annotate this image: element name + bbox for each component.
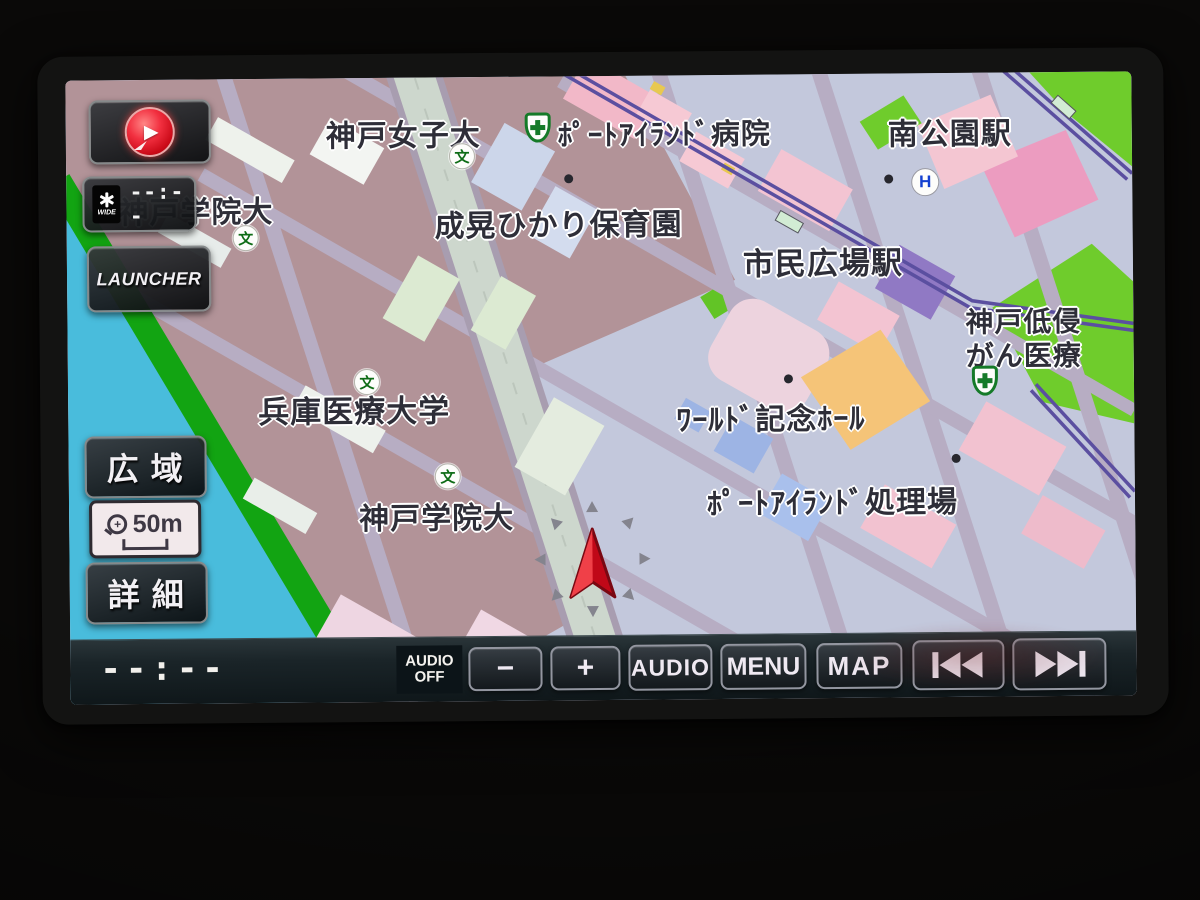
current-position-marker: [522, 488, 663, 629]
compass-arrow-glyph: ▶: [144, 120, 159, 143]
nav-unit-bezel: 神戸女子大 ﾎﾟｰﾄｱｲﾗﾝﾄﾞ病院 南公園駅 神戸学院大 成晃ひかり保育園 市…: [37, 47, 1169, 725]
school-char: 文: [454, 146, 469, 167]
map-label-port-island-hospital: ﾎﾟｰﾄｱｲﾗﾝﾄﾞ病院: [558, 111, 771, 155]
map-label-shimin-hiroba: 市民広場駅: [743, 237, 903, 283]
audio-off-line2: OFF: [414, 669, 444, 685]
school-char: 文: [359, 371, 374, 392]
position-arrow-icon: [570, 529, 615, 597]
map-label-world-hall: ﾜｰﾙﾄﾞ記念ﾎｰﾙ: [676, 394, 865, 440]
vics-info-button[interactable]: WIDE --:--: [82, 176, 196, 233]
map-label-minami-koen-station: 南公園駅: [888, 108, 1012, 153]
zoom-in-detail-button[interactable]: 詳細: [86, 561, 209, 624]
school-icon: 文: [435, 463, 461, 489]
school-icon: 文: [233, 225, 259, 251]
map-label-port-shorijo: ﾎﾟｰﾄｱｲﾗﾝﾄﾞ処理場: [707, 477, 958, 523]
clock-display: --:--: [100, 648, 228, 689]
heliport-icon: H: [911, 168, 939, 196]
scale-value: 50m: [133, 509, 183, 538]
scale-bracket-shape: [122, 539, 168, 550]
poi-dot: [952, 454, 961, 463]
photo-watermark-artifact: [840, 620, 1111, 692]
volume-down-button[interactable]: −: [468, 647, 542, 692]
audio-off-line1: AUDIO: [405, 654, 453, 670]
detail-label: 詳細: [108, 570, 196, 617]
wide-label: 広域: [106, 444, 194, 491]
heading-up-compass-icon: ▶: [125, 107, 175, 157]
school-char: 文: [440, 466, 455, 487]
zoom-out-wide-button[interactable]: 広域: [84, 435, 207, 498]
map-label-kobe-gakuin-south: 神戸学院大: [359, 493, 514, 538]
poi-dot: [784, 374, 793, 383]
launcher-button[interactable]: LAUNCHER: [87, 245, 212, 312]
zoom-in-magnifier-icon: +: [108, 514, 128, 534]
launcher-label: LAUNCHER: [96, 268, 201, 290]
school-char: 文: [238, 228, 253, 249]
school-icon: 文: [354, 369, 380, 395]
vics-star-shape: [99, 192, 114, 207]
map-label-hyogo-iryo: 兵庫医療大学: [258, 385, 450, 432]
poi-dot: [564, 174, 573, 183]
volume-up-button[interactable]: +: [550, 646, 620, 691]
vics-wide-label: WIDE: [98, 209, 116, 216]
menu-button[interactable]: MENU: [720, 643, 806, 690]
school-icon: 文: [449, 143, 475, 169]
photo-background: 神戸女子大 ﾎﾟｰﾄｱｲﾗﾝﾄﾞ病院 南公園駅 神戸学院大 成晃ひかり保育園 市…: [0, 0, 1200, 900]
heliport-char: H: [919, 172, 931, 192]
map-scale-indicator[interactable]: + 50m: [89, 500, 202, 559]
audio-button[interactable]: AUDIO: [628, 644, 712, 691]
compass-heading-button[interactable]: ▶: [88, 99, 211, 164]
vics-time-display: --:--: [130, 180, 195, 229]
map-label-seiko-hikari: 成晃ひかり保育園: [434, 199, 682, 245]
poi-dot: [884, 174, 893, 183]
vics-wide-icon: WIDE: [92, 185, 121, 223]
nav-screen: 神戸女子大 ﾎﾟｰﾄｱｲﾗﾝﾄﾞ病院 南公園駅 神戸学院大 成晃ひかり保育園 市…: [65, 71, 1136, 704]
audio-off-indicator: AUDIO OFF: [396, 645, 462, 694]
